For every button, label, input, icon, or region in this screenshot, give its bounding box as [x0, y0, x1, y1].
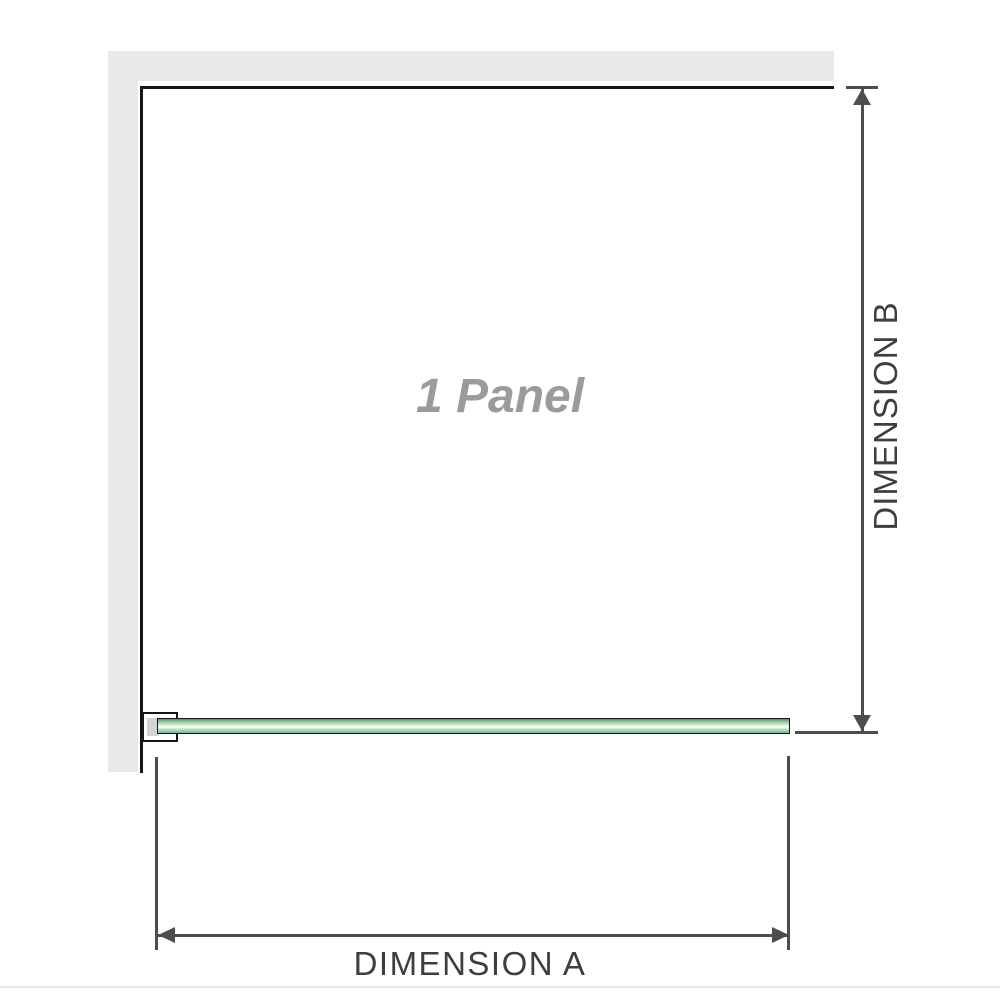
glass-panel-bar	[157, 718, 790, 734]
wall-top	[108, 51, 834, 81]
dimension-a-label: DIMENSION A	[310, 944, 630, 984]
arrow-right-icon	[772, 927, 789, 943]
dimension-b-line	[861, 88, 864, 732]
panel-label: 1 Panel	[350, 369, 650, 425]
arrow-down-icon	[853, 715, 871, 731]
panel-outline-top-border	[140, 86, 834, 89]
dimension-a-left-extension	[155, 757, 158, 950]
panel-outline-left-border	[140, 86, 143, 773]
shower-panel-diagram: 1 Panel DIMENSION B DIMENSION A	[0, 0, 1000, 1000]
arrow-up-icon	[853, 89, 871, 105]
arrow-left-icon	[158, 927, 175, 943]
wall-left	[108, 51, 138, 772]
dimension-b-bottom-tick	[795, 731, 878, 734]
dimension-a-right-extension	[787, 756, 790, 950]
dimension-b-label: DIMENSION B	[869, 216, 903, 616]
dimension-a-line	[158, 934, 789, 937]
page-separator	[0, 986, 1000, 988]
